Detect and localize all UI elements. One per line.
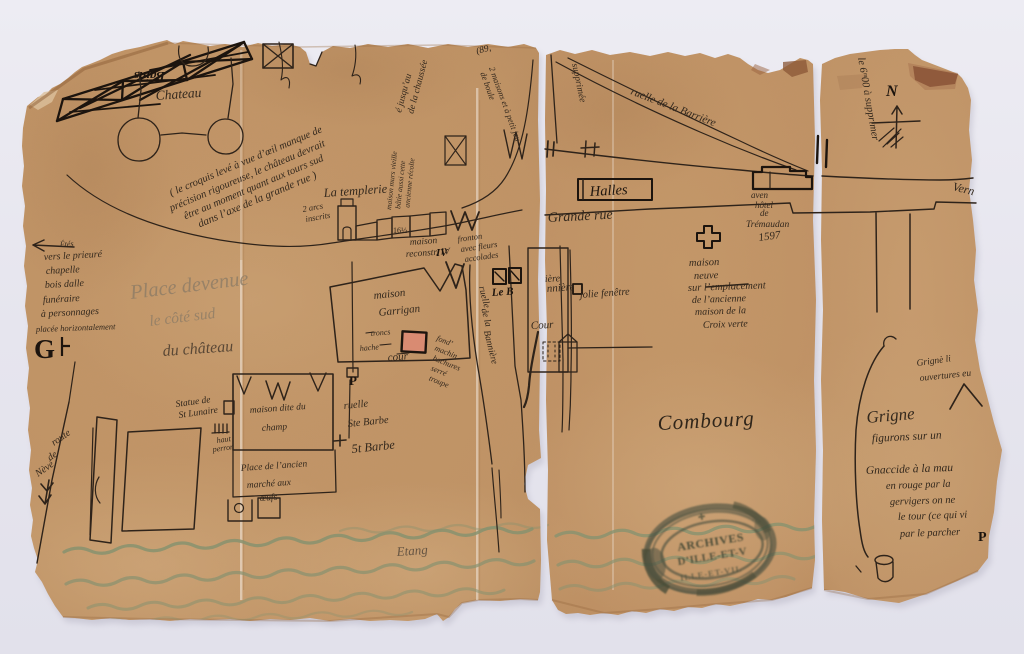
svg-text:16½: 16½	[393, 226, 407, 235]
svg-text:Trémaudan: Trémaudan	[746, 220, 790, 230]
svg-text:gervigers on ne: gervigers on ne	[890, 495, 956, 508]
svg-text:Le B: Le B	[490, 286, 513, 300]
svg-text:de: de	[760, 208, 769, 218]
svg-text:Étés: Étés	[58, 238, 73, 249]
svg-text:maison: maison	[410, 236, 438, 248]
svg-text:troncs: troncs	[370, 327, 390, 338]
svg-text:chapelle: chapelle	[46, 264, 81, 277]
svg-text:ière: ière	[545, 273, 561, 285]
svg-text:P: P	[349, 373, 357, 388]
svg-text:Bains: Bains	[134, 69, 166, 84]
svg-text:Etang: Etang	[395, 542, 429, 559]
svg-text:N: N	[885, 83, 899, 100]
svg-text:cour: cour	[387, 350, 409, 364]
svg-text:Combourg: Combourg	[657, 406, 755, 435]
svg-text:neuve: neuve	[694, 270, 719, 282]
svg-text:IV: IV	[435, 247, 449, 259]
svg-text:maison: maison	[689, 257, 720, 269]
svg-text:maison de la: maison de la	[695, 305, 746, 318]
svg-text:P: P	[978, 530, 987, 545]
svg-text:de l’ancienne: de l’ancienne	[692, 293, 747, 306]
svg-text:hache: hache	[359, 342, 379, 353]
svg-text:en rouge par la: en rouge par la	[886, 479, 951, 492]
svg-text:par le parcher: par le parcher	[899, 527, 962, 540]
svg-text:Croix verte: Croix verte	[703, 318, 749, 331]
svg-text:œufs: œufs	[259, 492, 277, 504]
svg-text:aven: aven	[751, 190, 768, 200]
svg-text:G: G	[34, 334, 55, 364]
svg-text:Cour: Cour	[531, 319, 555, 332]
svg-text:funéraire: funéraire	[43, 293, 81, 306]
svg-text:Halles: Halles	[588, 182, 628, 200]
svg-text:champ: champ	[262, 422, 288, 434]
svg-text:Chateau: Chateau	[155, 85, 202, 103]
svg-text:bois dalle: bois dalle	[45, 278, 85, 291]
